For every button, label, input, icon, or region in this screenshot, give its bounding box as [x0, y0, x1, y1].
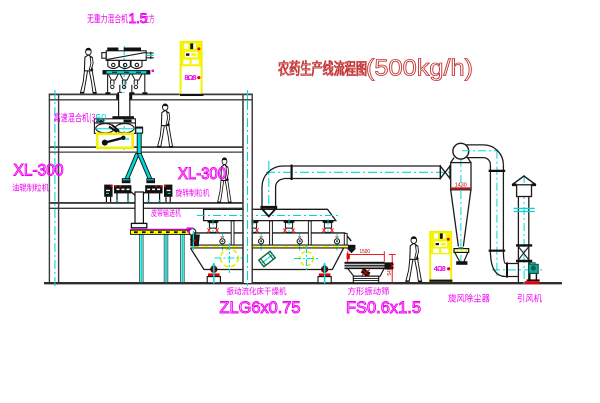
svg-text:1.5: 1.5: [129, 11, 148, 26]
svg-text:50: 50: [96, 113, 107, 125]
svg-text:(500kg/h): (500kg/h): [366, 55, 473, 81]
svg-text:ZLG6x0.75: ZLG6x0.75: [220, 298, 301, 317]
svg-text:XL-300: XL-300: [14, 162, 64, 180]
svg-text:4Ω8: 4Ω8: [434, 266, 446, 273]
svg-text:1500: 1500: [360, 249, 371, 255]
svg-text:XL-300: XL-300: [178, 165, 226, 183]
svg-text:FS0.6x1.5: FS0.6x1.5: [346, 298, 421, 317]
svg-text:1430: 1430: [455, 182, 467, 188]
svg-text:8Ω8: 8Ω8: [184, 73, 196, 82]
